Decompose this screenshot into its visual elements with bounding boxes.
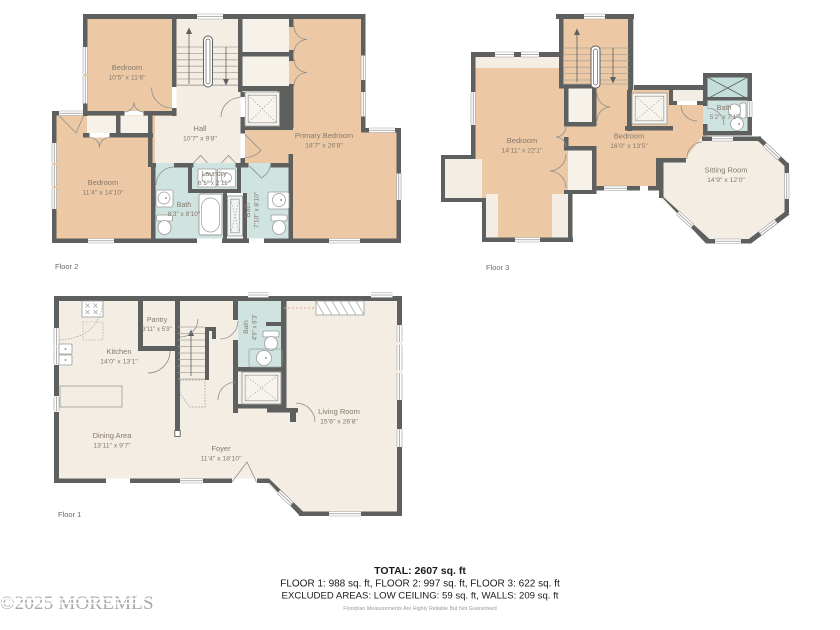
svg-text:Hall: Hall bbox=[194, 124, 207, 133]
svg-text:14’11" x 22’1": 14’11" x 22’1" bbox=[502, 148, 544, 155]
svg-text:Sitting Room: Sitting Room bbox=[705, 166, 748, 175]
svg-text:7’10" x 8’10": 7’10" x 8’10" bbox=[254, 191, 261, 228]
svg-text:Bedroom: Bedroom bbox=[112, 63, 142, 72]
svg-text:Bath: Bath bbox=[245, 203, 252, 218]
svg-text:Floor 2: Floor 2 bbox=[55, 262, 78, 271]
svg-text:13’11" x 9’7": 13’11" x 9’7" bbox=[93, 443, 131, 450]
svg-text:Primary Bedroom: Primary Bedroom bbox=[295, 131, 353, 140]
svg-text:Foyer: Foyer bbox=[211, 444, 231, 453]
svg-text:Dining Area: Dining Area bbox=[93, 431, 133, 440]
svg-text:Floor 1: Floor 1 bbox=[58, 510, 81, 519]
svg-text:Bath: Bath bbox=[243, 320, 250, 334]
svg-text:11’4" x 18’10": 11’4" x 18’10" bbox=[201, 456, 243, 463]
svg-text:6’1" x 2’11": 6’1" x 2’11" bbox=[198, 180, 231, 187]
svg-text:Pantry: Pantry bbox=[147, 317, 168, 324]
svg-text:3’11" x 5’9": 3’11" x 5’9" bbox=[142, 327, 172, 333]
svg-text:Living Room: Living Room bbox=[318, 407, 360, 416]
svg-text:Bath: Bath bbox=[717, 105, 732, 112]
svg-text:5’2" x 7’1": 5’2" x 7’1" bbox=[710, 114, 740, 121]
svg-text:16’0" x 13’5": 16’0" x 13’5" bbox=[610, 143, 648, 150]
svg-text:TOTAL: 2607 sq. ft: TOTAL: 2607 sq. ft bbox=[374, 565, 466, 577]
svg-text:Floorplan Measurements Are Hig: Floorplan Measurements Are Highly Reliab… bbox=[343, 606, 496, 612]
svg-text:8’3" x 8’10": 8’3" x 8’10" bbox=[168, 211, 201, 218]
svg-text:FLOOR 1: 988 sq. ft, FLOOR 2:: FLOOR 1: 988 sq. ft, FLOOR 2: 997 sq. ft… bbox=[280, 579, 560, 590]
svg-text:EXCLUDED AREAS: LOW CEILING: 5: EXCLUDED AREAS: LOW CEILING: 59 sq. ft, … bbox=[282, 591, 559, 602]
svg-text:15’6" x 26’8": 15’6" x 26’8" bbox=[320, 419, 358, 426]
svg-text:Floor 3: Floor 3 bbox=[486, 263, 509, 272]
svg-text:14’9" x 12’0": 14’9" x 12’0" bbox=[707, 177, 745, 184]
svg-text:18’7" x 26’8": 18’7" x 26’8" bbox=[305, 143, 343, 150]
svg-text:10’5" x 11’6": 10’5" x 11’6" bbox=[108, 75, 146, 82]
svg-text:Bedroom: Bedroom bbox=[507, 136, 537, 145]
svg-text:Bedroom: Bedroom bbox=[88, 178, 118, 187]
svg-text:Kitchen: Kitchen bbox=[106, 347, 131, 356]
svg-text:Laundry: Laundry bbox=[201, 171, 227, 178]
svg-text:Bedroom: Bedroom bbox=[614, 132, 644, 141]
svg-text:Bath: Bath bbox=[177, 202, 192, 209]
svg-text:11’4" x 14’10": 11’4" x 14’10" bbox=[83, 190, 125, 197]
svg-text:4’9" x 8’3": 4’9" x 8’3" bbox=[253, 314, 259, 341]
svg-text:10’7" x 9’8": 10’7" x 9’8" bbox=[183, 136, 218, 143]
svg-text:14’0" x 13’1": 14’0" x 13’1" bbox=[100, 359, 138, 366]
